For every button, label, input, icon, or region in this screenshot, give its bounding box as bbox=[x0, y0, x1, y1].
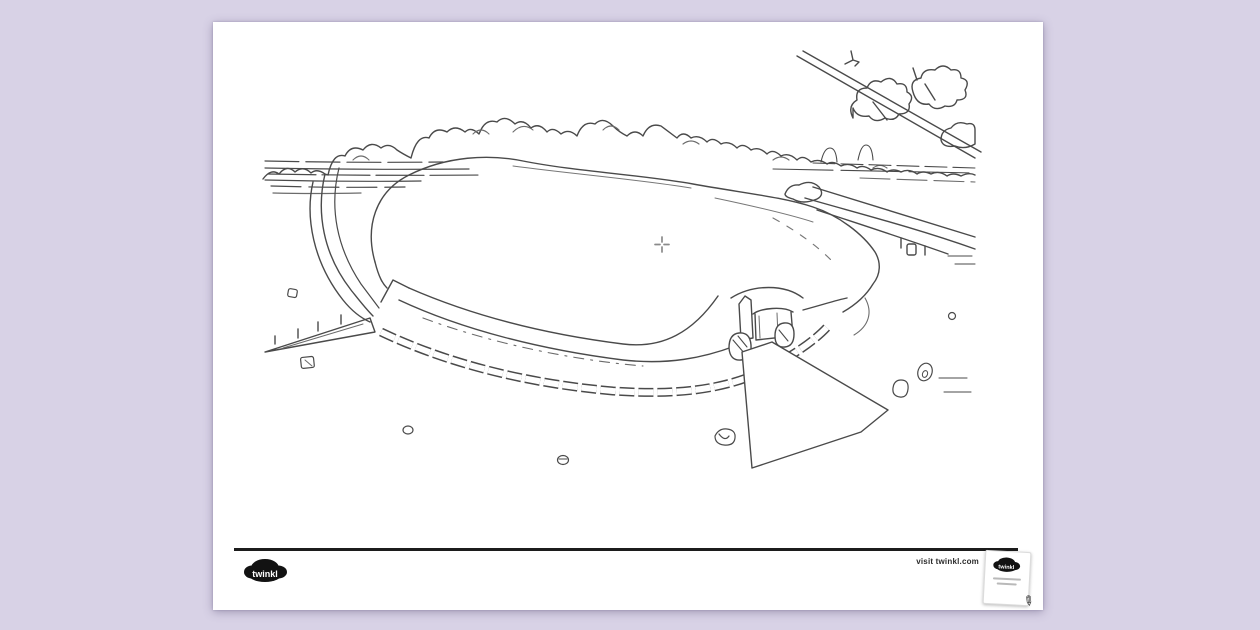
ridge-bush bbox=[785, 182, 822, 202]
twinkl-logo-text: twinkl bbox=[252, 569, 278, 579]
visit-url-text: visit twinkl.com bbox=[916, 557, 979, 566]
entrance-kerbstone bbox=[775, 323, 794, 347]
field-lines bbox=[265, 161, 483, 194]
footer-divider bbox=[234, 548, 1018, 551]
twinkl-cloud-icon: twinkl bbox=[241, 555, 293, 587]
right-horizon bbox=[773, 145, 975, 182]
left-fence-ramp bbox=[265, 315, 375, 352]
badge-cloud-icon: twinkl bbox=[990, 554, 1025, 576]
treeline bbox=[263, 118, 975, 179]
branch bbox=[797, 51, 981, 158]
entrance-apron bbox=[742, 342, 888, 468]
badge-logo-text: twinkl bbox=[998, 564, 1015, 571]
badge-text-line bbox=[997, 582, 1017, 585]
wall-end-stone bbox=[381, 280, 409, 302]
colouring-sheet-page: twinkl visit twinkl.com twinkl ✎ bbox=[213, 22, 1043, 610]
cursor-crosshair bbox=[655, 237, 669, 252]
badge-text-line bbox=[993, 577, 1021, 580]
entrance-niche bbox=[731, 288, 803, 299]
right-path-fence bbox=[785, 182, 975, 264]
mound-entrance bbox=[729, 288, 847, 361]
twinkl-quality-badge: twinkl ✎ bbox=[983, 550, 1032, 606]
colouring-illustration bbox=[213, 22, 1043, 542]
pencil-icon: ✎ bbox=[1019, 591, 1037, 610]
mound bbox=[371, 157, 879, 392]
screenshot-root: { "canvas": { "background_color": "#d8d2… bbox=[0, 0, 1260, 630]
twinkl-logo: twinkl bbox=[241, 555, 293, 587]
left-path bbox=[310, 168, 387, 322]
